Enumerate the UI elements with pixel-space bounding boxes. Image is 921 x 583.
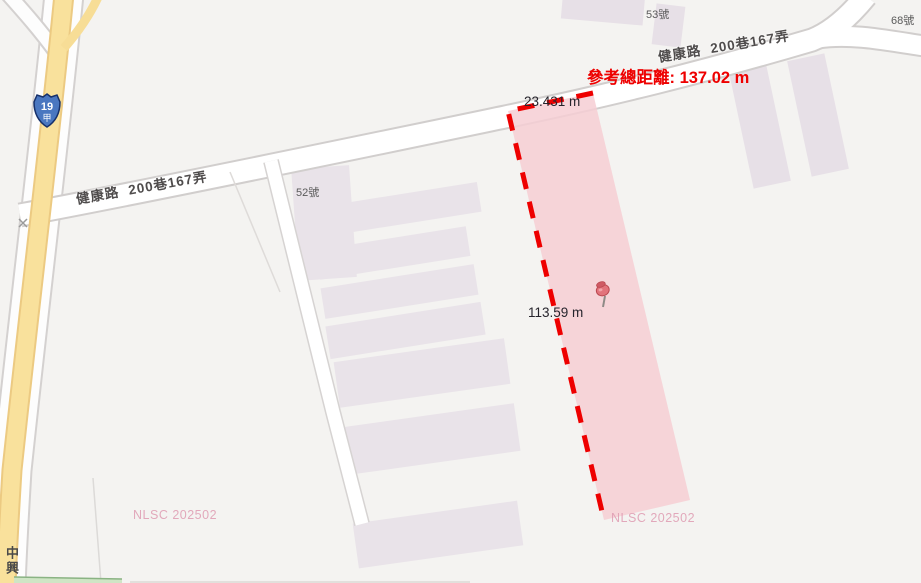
nlsc-watermark-left: NLSC 202502 xyxy=(133,508,217,522)
segment-distance-top: 23.431 m xyxy=(524,94,580,109)
house-number-68: 68號 xyxy=(891,12,914,28)
nlsc-watermark-right: NLSC 202502 xyxy=(611,511,695,525)
total-distance-label: 參考總距離: 137.02 m xyxy=(587,64,749,88)
house-number-52: 52號 xyxy=(296,184,319,200)
shield-suffix: 甲 xyxy=(42,113,51,123)
segment-distance-left: 113.59 m xyxy=(528,305,583,320)
alley xyxy=(271,161,362,524)
map-canvas[interactable]: 19 甲 健康路 200巷167弄 健康路 200巷167弄 參考總距離: 13… xyxy=(0,0,921,583)
house-number-53: 53號 xyxy=(646,6,669,22)
map-vector-layer: 19 甲 xyxy=(0,0,921,583)
main-road-branch xyxy=(818,36,921,46)
street-label-zhongxing: 中興 xyxy=(2,546,21,576)
parcel-line xyxy=(93,478,101,583)
shield-number: 19 xyxy=(41,101,53,113)
